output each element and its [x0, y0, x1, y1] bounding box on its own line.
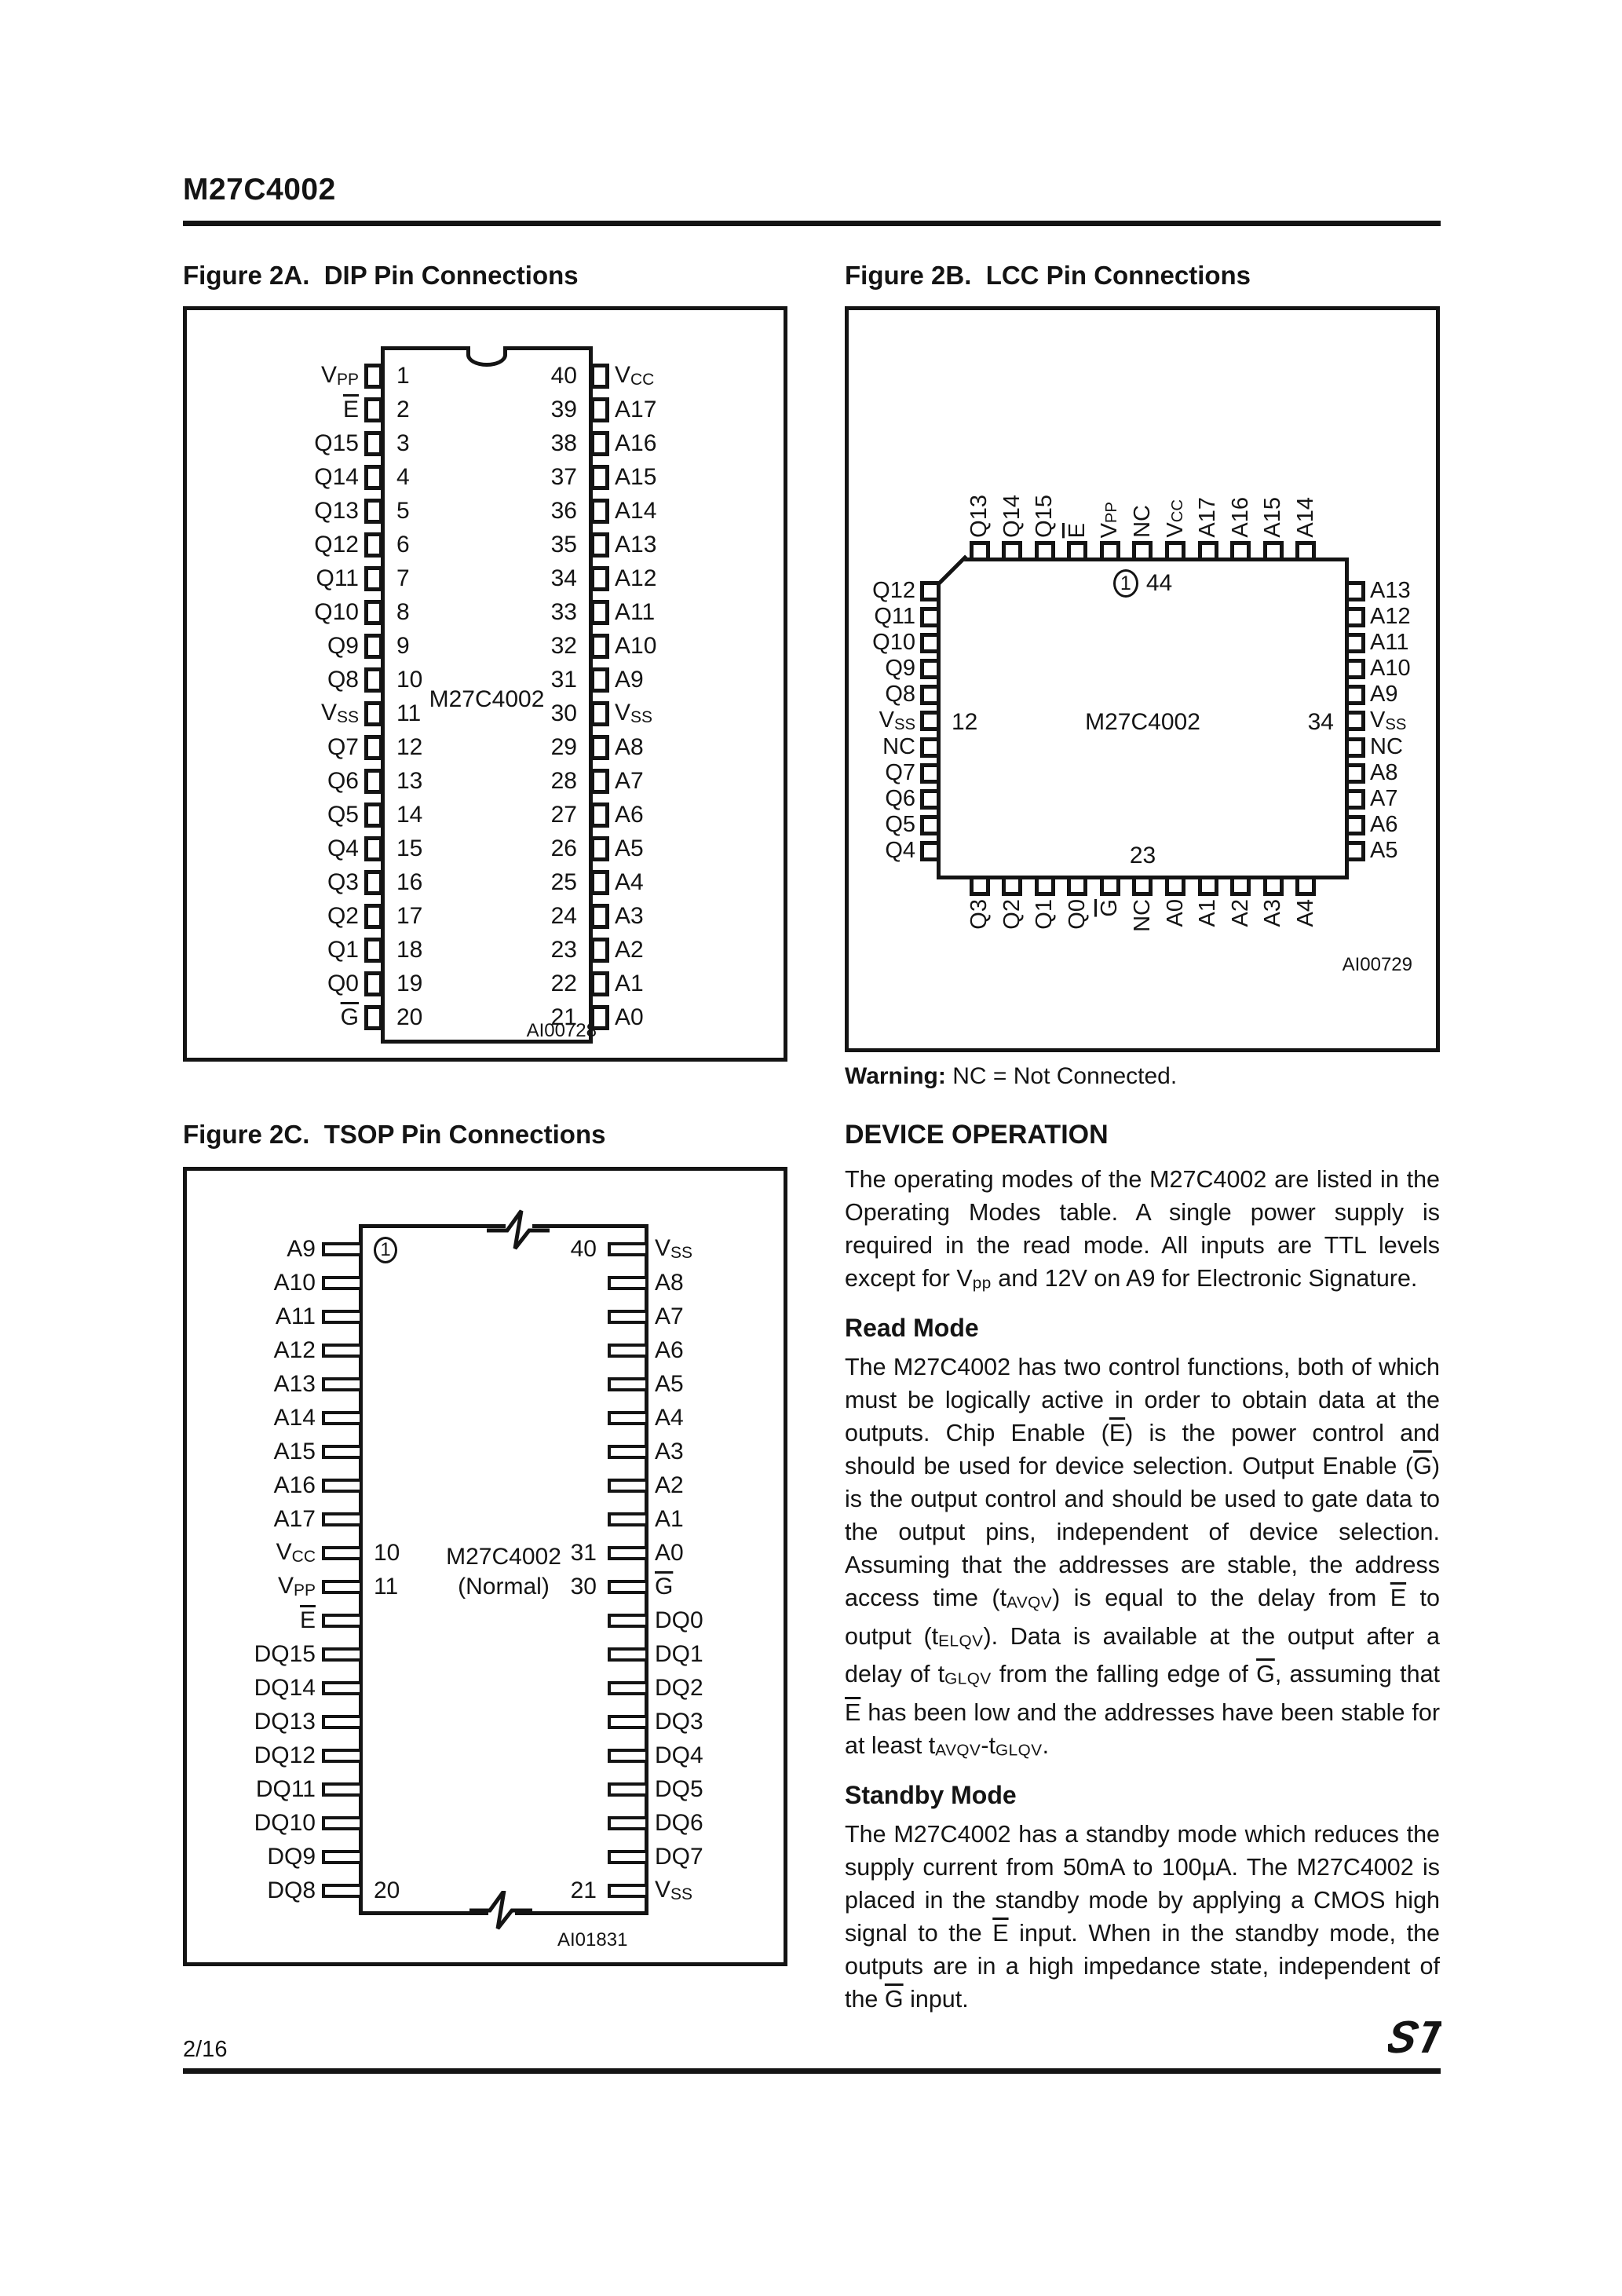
pin-label: DQ7 [655, 1844, 703, 1870]
pin-stub [1165, 541, 1185, 561]
pin-row: A13A5 [187, 1367, 784, 1401]
pin-stub [364, 499, 383, 524]
pin-stub [608, 1715, 648, 1729]
pin-label: DQ5 [655, 1776, 703, 1802]
pin-stub [1165, 876, 1185, 896]
pin-label: A17 [1196, 497, 1219, 538]
pin-label: VCC [1164, 499, 1187, 538]
pin-label-cell: Q15 [187, 430, 364, 457]
pin-label-cell: A7 [609, 768, 784, 795]
pin-number: 21 [550, 1877, 608, 1904]
lcc-pin23-number: 23 [941, 843, 1345, 869]
pin-label-cell: Q10 [187, 599, 364, 626]
pin-stub [322, 1242, 363, 1256]
pin-stub [322, 1715, 363, 1729]
pin-stub [920, 789, 941, 810]
pin-label: VPP [321, 362, 359, 388]
lcc-top-pin: Q15 [1033, 495, 1056, 561]
pin-stub [322, 1411, 363, 1425]
pin-stub [364, 532, 383, 558]
pin-stub [608, 1512, 648, 1526]
pin-row: Q13536A14 [187, 494, 784, 528]
pin-label: A4 [1295, 899, 1317, 927]
text-segment: and 12V on A9 for Electronic Signature. [992, 1265, 1418, 1292]
pin-stub [608, 1884, 648, 1898]
pin-stub [920, 607, 941, 627]
pin-label: E [1066, 523, 1089, 538]
pin-stub [608, 1580, 648, 1594]
pin-row: Q31625A4 [187, 865, 784, 899]
pin-label: A2 [1229, 899, 1252, 927]
pin-label: Q7 [327, 734, 359, 760]
pin-stub [608, 1647, 648, 1662]
pin-stub [608, 1411, 648, 1425]
pin-label: E [343, 397, 359, 422]
lcc-left-pin: Q12 [849, 578, 941, 604]
pin-label-cell: A11 [187, 1303, 322, 1330]
pin-stub [590, 870, 609, 895]
pin-number: 4 [396, 464, 410, 491]
pin-stub [1345, 789, 1365, 810]
pin-number: 25 [551, 869, 577, 896]
pin-label: A10 [615, 633, 656, 659]
pin-label: A3 [1262, 899, 1284, 927]
text-segment: GLQV [944, 1670, 992, 1688]
pin-row: Q41526A5 [187, 832, 784, 865]
pin-label: A6 [655, 1337, 684, 1363]
pin-label: E [300, 1607, 316, 1633]
dip-body: 1427 [383, 802, 590, 828]
fig2b-note: AI00729 [1343, 954, 1412, 976]
pin-label-cell: DQ0 [648, 1607, 784, 1634]
pin-label-cell: E [187, 397, 364, 423]
pin-number: 38 [551, 430, 577, 457]
pin-label: Q9 [885, 656, 915, 682]
pin-row: Q01922A1 [187, 967, 784, 1000]
pin-stub [590, 431, 609, 456]
pin-stub [322, 1749, 363, 1763]
pin-row: VPP1130G [187, 1570, 784, 1603]
pin-row: DQ15DQ1 [187, 1637, 784, 1671]
text-segment: AVQV [1006, 1594, 1052, 1612]
device-operation-section: DEVICE OPERATION The operating modes of … [845, 1120, 1440, 2022]
pin-row: VCC1031A0 [187, 1536, 784, 1570]
pin-row: DQ82021VSS [187, 1874, 784, 1907]
pin-stub [920, 685, 941, 705]
pin-label-cell: Q11 [187, 565, 364, 592]
pin-label: A14 [274, 1405, 316, 1431]
pin-stub [1345, 763, 1365, 784]
lcc-top-pin: A14 [1295, 497, 1317, 561]
pin-label: Q7 [885, 760, 915, 786]
pin-label-cell: DQ10 [187, 1810, 322, 1837]
pin-number: 2 [396, 397, 410, 423]
pin-stub [1002, 541, 1022, 561]
pin-label-cell: Q13 [187, 498, 364, 525]
pin-label-cell: Q14 [187, 464, 364, 491]
pin-label: A14 [1295, 497, 1317, 538]
pin-label: A12 [1370, 604, 1411, 630]
pin-number: 31 [551, 667, 577, 693]
pin-stub [322, 1681, 363, 1695]
pin-number: 3 [396, 430, 410, 457]
pin-label: A17 [615, 397, 656, 422]
pin-number: 11 [396, 700, 421, 727]
dip-body: 1229 [383, 734, 590, 761]
pin-label: DQ6 [655, 1810, 703, 1836]
pin-label: A16 [1229, 497, 1252, 538]
pin-label-cell: A3 [609, 903, 784, 930]
pin-stub [590, 836, 609, 861]
pin-label-cell: A8 [609, 734, 784, 761]
lcc-left-pin: Q4 [849, 838, 941, 864]
page-number: 2/16 [183, 2037, 227, 2063]
pin-label-cell: DQ5 [648, 1776, 784, 1803]
pin-stub [322, 1512, 363, 1526]
pin-label-cell: A4 [648, 1405, 784, 1431]
pin-label: A0 [1164, 899, 1187, 927]
page-title: M27C4002 [183, 173, 336, 207]
pin-number: 28 [551, 768, 577, 795]
pin-label: Q12 [872, 578, 915, 604]
pin-label-cell: A16 [609, 430, 784, 457]
pin-stub [364, 566, 383, 591]
dip-body: 1724 [383, 903, 590, 930]
pin-label-cell: A11 [609, 599, 784, 626]
pin-number: 29 [551, 734, 577, 761]
lcc-left-pin: Q7 [849, 760, 941, 786]
pin-number: 20 [396, 1004, 422, 1031]
pin-stub [364, 667, 383, 693]
pin-label: G [1098, 899, 1121, 917]
text-segment: GLQV [995, 1741, 1043, 1759]
pin-number: 30 [551, 700, 577, 727]
pin-label-cell: A12 [609, 565, 784, 592]
pin-stub [322, 1546, 363, 1560]
pin-stub [322, 1884, 363, 1898]
pin-stub [920, 633, 941, 653]
pin-row: A11A7 [187, 1300, 784, 1333]
text-segment: from the falling edge of [992, 1661, 1256, 1687]
pin-row: DQ11DQ5 [187, 1772, 784, 1806]
pin-number: 14 [396, 802, 422, 828]
lcc-bottom-pin: A0 [1164, 876, 1187, 927]
pin-label: DQ13 [254, 1709, 316, 1735]
pin-label: Q13 [314, 498, 359, 524]
lcc-top-pin: Q14 [1001, 495, 1024, 561]
pin-label-cell: Q5 [187, 802, 364, 828]
fig2a-note: AI00728 [527, 1020, 597, 1042]
text-segment: E [1390, 1585, 1406, 1611]
dip-body: 635 [383, 532, 590, 558]
pin-label: A9 [1370, 682, 1397, 707]
pin-label: A13 [1370, 578, 1411, 604]
pin-stub [322, 1445, 363, 1459]
pin-stub [920, 815, 941, 835]
pin-label: Q1 [1033, 899, 1056, 930]
pin-label: VCC [615, 362, 654, 388]
pin-label: NC [1131, 899, 1154, 932]
pin-label: VSS [615, 700, 652, 726]
lcc-top-pin: VCC [1164, 499, 1187, 561]
pin-number: 13 [396, 768, 422, 795]
pin-label-cell: DQ8 [187, 1877, 322, 1904]
lcc-bottom-pin: G [1098, 876, 1121, 917]
pin-stub [322, 1310, 363, 1324]
dip-body: 338 [383, 430, 590, 457]
fig2a-box: M27C4002 VPP140VCCE239A17Q15338A16Q14437… [183, 306, 787, 1062]
svg-text:ST: ST [1388, 2013, 1441, 2063]
pin-stub [1345, 685, 1365, 705]
pin-label: A1 [1196, 899, 1219, 927]
pin-label-cell: DQ13 [187, 1709, 322, 1735]
pin-label-cell: A14 [187, 1405, 322, 1431]
pin-label-cell: VSS [648, 1235, 784, 1263]
pin-stub [608, 1445, 648, 1459]
lcc-left-pin: VSS [849, 707, 941, 734]
pin-stub [1345, 581, 1365, 601]
pin-label: Q3 [327, 869, 359, 895]
pin-stub [590, 364, 609, 389]
pin-number: 10 [363, 1540, 421, 1567]
fig2c-note: AI01831 [557, 1929, 627, 1951]
pin-label: NC [1370, 734, 1403, 760]
pin-row: DQ10DQ6 [187, 1806, 784, 1840]
pin-label-cell: Q0 [187, 971, 364, 997]
pin-stub [1132, 541, 1153, 561]
pin-stub [590, 735, 609, 760]
dip-body: 1130 [383, 700, 590, 727]
text-segment: E [992, 1920, 1008, 1947]
pin-label-cell: A6 [648, 1337, 784, 1364]
pin-label: Q13 [968, 495, 991, 538]
footer-rule [183, 2068, 1441, 2074]
lcc-bottom-pin: Q2 [1001, 876, 1024, 930]
pin-label: A14 [615, 498, 656, 524]
pin-label: A17 [274, 1506, 316, 1532]
pin-label-cell: Q7 [187, 734, 364, 761]
pin-label: Q5 [885, 812, 915, 838]
pin-number: 11 [363, 1574, 421, 1600]
pin-stub [970, 541, 990, 561]
dip-body: 1823 [383, 937, 590, 963]
pin-label-cell: A10 [609, 633, 784, 660]
pin-row: Q15338A16 [187, 426, 784, 460]
pin-number: 7 [396, 565, 410, 592]
pin-label-cell: Q3 [187, 869, 364, 896]
pin-stub [590, 904, 609, 929]
pin-label: VPP [1098, 502, 1121, 538]
pin-label-cell: VSS [187, 700, 364, 727]
pin-label: A5 [615, 835, 644, 861]
pin-label-cell: A1 [648, 1506, 784, 1533]
pin-stub [364, 1005, 383, 1030]
pin-number: 10 [396, 667, 422, 693]
pin-stub [1345, 711, 1365, 731]
pin-label: VSS [655, 1877, 692, 1903]
pin-label-cell: Q4 [187, 835, 364, 862]
pin-label-cell: A9 [609, 667, 784, 693]
pin-row: Q14437A15 [187, 460, 784, 494]
pin-stub [608, 1377, 648, 1391]
pin-stub [1230, 876, 1251, 896]
pin-number: 19 [396, 971, 422, 997]
pin-stub [590, 532, 609, 558]
pin-label-cell: DQ7 [648, 1844, 784, 1870]
pin-row: Q51427A6 [187, 798, 784, 832]
pin-label: DQ15 [254, 1641, 316, 1667]
lcc-right-pin: A5 [1345, 838, 1437, 864]
pin-label-cell: VCC [187, 1539, 322, 1567]
lcc-bottom-pin: A2 [1229, 876, 1252, 927]
pin-number: 33 [551, 599, 577, 626]
dip-body: 239 [383, 397, 590, 423]
pin-stub [364, 870, 383, 895]
text-segment: input. [904, 1986, 969, 2013]
pin-stub [364, 701, 383, 726]
pin-stub [590, 600, 609, 625]
text-segment: ELQV [938, 1632, 983, 1650]
pin-stub [364, 938, 383, 963]
pin-row: A17A1 [187, 1502, 784, 1536]
lcc-right-pin: VSS [1345, 707, 1437, 734]
pin-label: A9 [287, 1236, 316, 1262]
pin-stub [590, 397, 609, 422]
pin-stub [608, 1816, 648, 1830]
lcc-top-pin: A17 [1196, 497, 1219, 561]
pin-stub [590, 769, 609, 794]
pin-stub [608, 1850, 648, 1864]
pin-label-cell: DQ12 [187, 1742, 322, 1769]
pin-stub [608, 1479, 648, 1493]
standby-mode-heading: Standby Mode [845, 1781, 1440, 1810]
pin-label-cell: Q2 [187, 903, 364, 930]
pin-stub [322, 1782, 363, 1797]
pin-label: DQ8 [267, 1877, 316, 1903]
pin-stub [1295, 541, 1316, 561]
pin-stub [920, 659, 941, 679]
pin-row: A12A6 [187, 1333, 784, 1367]
pin1-circle: 1 [1113, 569, 1138, 598]
read-mode-paragraph: The M27C4002 has two control functions, … [845, 1351, 1440, 1767]
header-rule [183, 221, 1441, 226]
dip-body: 1625 [383, 869, 590, 896]
pin-label: A16 [615, 430, 656, 456]
pin-label: DQ2 [655, 1675, 703, 1701]
pin-label-cell: Q12 [187, 532, 364, 558]
pin-number: 9 [396, 633, 410, 660]
lcc-right-pin: A10 [1345, 656, 1437, 682]
pin-number: 36 [551, 498, 577, 525]
text-segment: ) is equal to the delay from [1052, 1585, 1390, 1611]
lcc-left-pin: Q8 [849, 682, 941, 707]
pin-label: A2 [655, 1472, 684, 1498]
pin-label: DQ0 [655, 1607, 703, 1633]
pin-label: G [341, 1004, 359, 1030]
pin-stub [608, 1310, 648, 1324]
datasheet-page: M27C4002 Figure 2A. DIP Pin Connections … [0, 0, 1622, 2296]
pin-label-cell: A14 [609, 498, 784, 525]
pin-label: NC [1131, 505, 1154, 538]
lcc-bottom-pin: NC [1131, 876, 1154, 932]
pin-label: A5 [1370, 838, 1397, 864]
lcc-right-pin: A8 [1345, 760, 1437, 786]
pin-stub [590, 566, 609, 591]
pin-stub [322, 1276, 363, 1290]
pin-label-cell: G [648, 1574, 784, 1600]
pin-number: 39 [551, 397, 577, 423]
pin-label: Q5 [327, 802, 359, 828]
text-segment: E [1109, 1420, 1125, 1446]
pin-label: DQ1 [655, 1641, 703, 1667]
pin-number: 23 [551, 937, 577, 963]
lcc-left-pin: Q11 [849, 604, 941, 630]
lcc-left-pin: Q10 [849, 630, 941, 656]
pin-label-cell: A5 [648, 1371, 784, 1398]
standby-mode-paragraph: The M27C4002 has a standby mode which re… [845, 1818, 1440, 2016]
pin-number: 16 [396, 869, 422, 896]
pin-row: DQ13DQ3 [187, 1705, 784, 1738]
pin-label: DQ11 [256, 1776, 316, 1802]
pin-label-cell: A8 [648, 1270, 784, 1296]
pin-label: A15 [615, 464, 656, 490]
pin-label-cell: VPP [187, 362, 364, 389]
lcc-right-pin: A9 [1345, 682, 1437, 707]
pin-stub [590, 465, 609, 490]
pin-label: VSS [1370, 707, 1406, 734]
pin-label-cell: Q1 [187, 937, 364, 963]
pin-label-cell: DQ2 [648, 1675, 784, 1702]
pin-stub [364, 735, 383, 760]
dip-body: 536 [383, 498, 590, 525]
pin-row: Q21724A3 [187, 899, 784, 933]
pin-stub [1035, 541, 1055, 561]
pin-number: 15 [396, 835, 422, 862]
pin-label: Q3 [968, 899, 991, 930]
pin-label: A8 [615, 734, 644, 760]
text-segment: , assuming that [1275, 1661, 1440, 1687]
pin-row: VPP140VCC [187, 359, 784, 393]
lcc-top-pin: E [1066, 523, 1089, 561]
pin-label: A16 [274, 1472, 316, 1498]
text-segment: AVQV [935, 1741, 981, 1759]
pin-number: 6 [396, 532, 410, 558]
pin-stub [364, 397, 383, 422]
pin-label: A0 [655, 1540, 684, 1566]
text-segment: G [1256, 1661, 1275, 1687]
pin-stub [1345, 607, 1365, 627]
pin-label-cell: A10 [187, 1270, 322, 1296]
pin-stub [608, 1344, 648, 1358]
pin-label: A11 [1370, 630, 1408, 656]
pin-label: A6 [1370, 812, 1397, 838]
dip-body: 932 [383, 633, 590, 660]
dip-body: 1526 [383, 835, 590, 862]
pin-stub [590, 803, 609, 828]
pin-number: 24 [551, 903, 577, 930]
pin-stub [608, 1749, 648, 1763]
pin-stub [364, 634, 383, 659]
pin-label-cell: Q8 [187, 667, 364, 693]
pin-row: VSS1130VSS [187, 696, 784, 730]
pin-label-cell: A9 [187, 1236, 322, 1263]
pin-label: VCC [276, 1539, 316, 1565]
pin-stub [1035, 876, 1055, 896]
pin-stub [322, 1647, 363, 1662]
pin-label: Q15 [314, 430, 359, 456]
pin-label: Q0 [1066, 899, 1089, 930]
pin-label-cell: DQ1 [648, 1641, 784, 1668]
